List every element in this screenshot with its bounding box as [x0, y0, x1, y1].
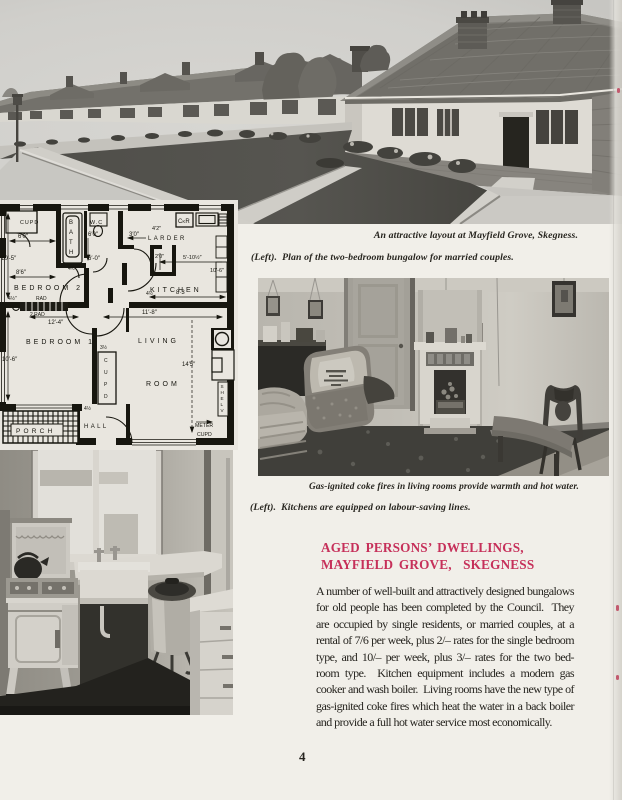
svg-text:W.C: W.C: [90, 220, 103, 226]
svg-text:6′0″: 6′0″: [18, 234, 29, 240]
svg-text:3′0″: 3′0″: [129, 232, 140, 238]
svg-text:11′-8″: 11′-8″: [142, 310, 158, 316]
svg-text:B: B: [69, 220, 73, 226]
svg-text:E: E: [221, 396, 224, 401]
svg-text:CUPD: CUPD: [20, 220, 39, 226]
svg-text:2′0″: 2′0″: [155, 254, 164, 260]
svg-text:RAD: RAD: [36, 296, 47, 302]
svg-text:KITCHEN: KITCHEN: [150, 287, 202, 294]
svg-text:ROOM: ROOM: [146, 381, 180, 388]
svg-text:6′-0″: 6′-0″: [88, 256, 101, 262]
svg-text:U: U: [104, 370, 108, 376]
svg-text:10′-5″: 10′-5″: [1, 256, 17, 262]
svg-text:CUPD: CUPD: [197, 432, 212, 438]
svg-text:H: H: [69, 250, 73, 256]
svg-text:4½″: 4½″: [8, 295, 17, 302]
svg-text:12′-4″: 12′-4″: [48, 320, 64, 326]
svg-text:METER: METER: [195, 423, 213, 429]
svg-text:4½: 4½: [84, 405, 92, 412]
svg-text:HALL: HALL: [84, 424, 109, 430]
svg-text:4′2″: 4′2″: [152, 226, 161, 232]
svg-text:LIVING: LIVING: [138, 338, 179, 345]
svg-text:8′6″: 8′6″: [16, 270, 27, 276]
svg-text:C: C: [104, 358, 108, 364]
svg-text:T: T: [69, 240, 73, 246]
svg-text:10′-6″: 10′-6″: [2, 357, 18, 363]
svg-text:A: A: [69, 230, 73, 236]
svg-text:4½: 4½: [68, 265, 76, 272]
svg-text:D: D: [104, 394, 108, 400]
svg-text:BEDROOM 2: BEDROOM 2: [14, 285, 83, 292]
svg-text:S: S: [221, 384, 224, 389]
svg-text:3½: 3½: [100, 344, 108, 351]
svg-text:BEDROOM 1: BEDROOM 1: [26, 339, 95, 346]
svg-text:L: L: [221, 402, 224, 407]
svg-text:PORCH: PORCH: [16, 428, 55, 435]
svg-text:H: H: [221, 390, 224, 395]
svg-text:LARDER: LARDER: [148, 236, 187, 242]
svg-text:6′0″: 6′0″: [88, 232, 99, 238]
svg-text:2 RAD: 2 RAD: [30, 312, 45, 318]
svg-text:10′-6″: 10′-6″: [210, 268, 224, 274]
svg-text:14′5″: 14′5″: [182, 362, 196, 368]
svg-text:5′-10½″: 5′-10½″: [183, 254, 202, 261]
